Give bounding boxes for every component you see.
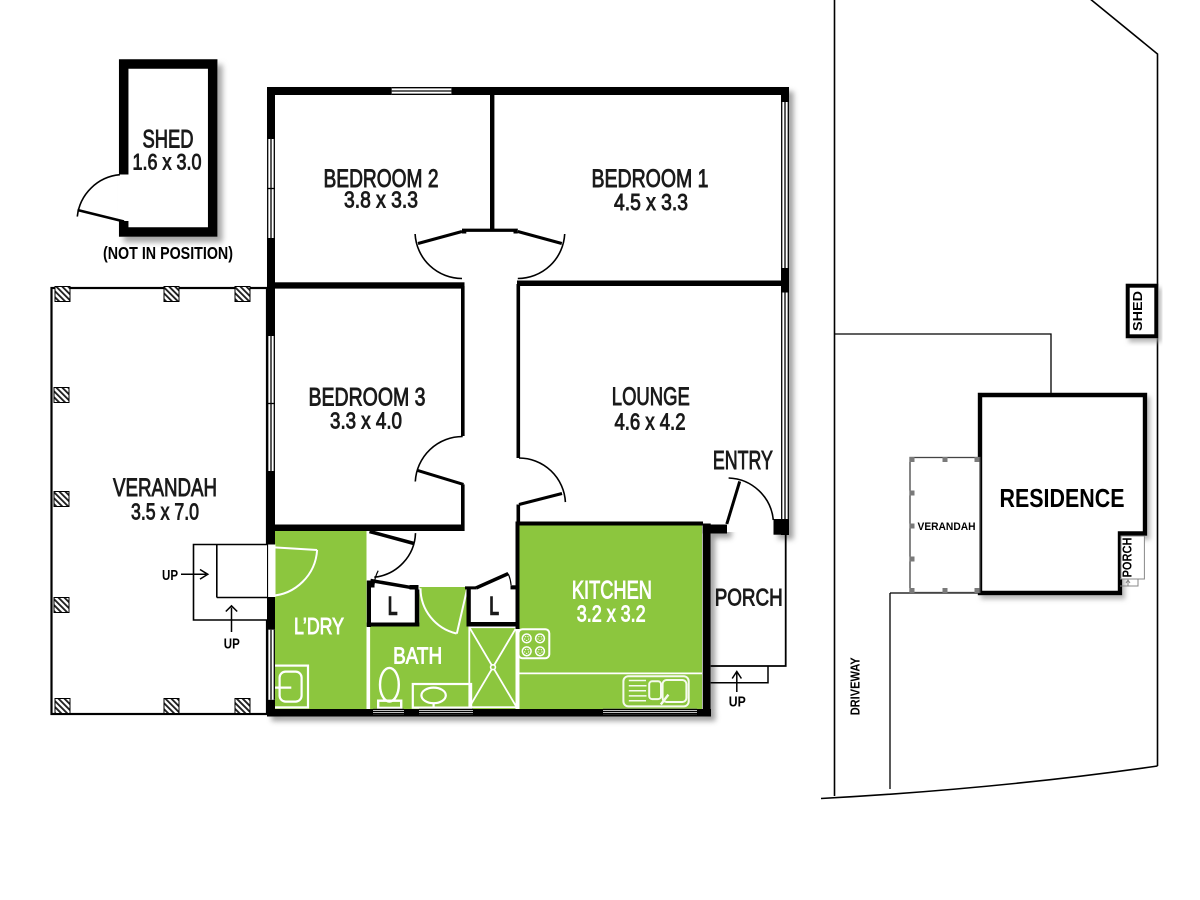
- svg-text:RESIDENCE: RESIDENCE: [1000, 483, 1125, 513]
- svg-text:ENTRY: ENTRY: [713, 445, 773, 475]
- svg-text:4.6 x 4.2: 4.6 x 4.2: [615, 409, 686, 435]
- svg-text:3.3 x 4.0: 3.3 x 4.0: [330, 408, 402, 434]
- svg-text:L’DRY: L’DRY: [294, 613, 344, 639]
- svg-text:3.5 x 7.0: 3.5 x 7.0: [131, 499, 199, 525]
- svg-text:3.8 x 3.3: 3.8 x 3.3: [344, 187, 418, 213]
- svg-text:UP: UP: [224, 636, 240, 653]
- svg-text:L: L: [388, 591, 398, 621]
- svg-text:UP: UP: [729, 694, 746, 711]
- svg-text:L: L: [489, 591, 499, 621]
- svg-text:VERANDAH: VERANDAH: [918, 521, 976, 533]
- svg-text:UP: UP: [162, 567, 178, 584]
- svg-text:SHED: SHED: [1131, 291, 1145, 331]
- svg-text:PORCH: PORCH: [715, 585, 783, 612]
- svg-text:3.2 x 3.2: 3.2 x 3.2: [577, 601, 646, 627]
- svg-text:LOUNGE: LOUNGE: [612, 383, 690, 411]
- svg-text:DRIVEWAY: DRIVEWAY: [847, 657, 862, 715]
- svg-text:BATH: BATH: [393, 643, 442, 669]
- svg-text:1.6 x 3.0: 1.6 x 3.0: [133, 150, 202, 175]
- svg-text:(NOT IN POSITION): (NOT IN POSITION): [103, 243, 233, 263]
- svg-text:4.5 x 3.3: 4.5 x 3.3: [614, 189, 688, 215]
- svg-text:PORCH: PORCH: [1121, 538, 1135, 578]
